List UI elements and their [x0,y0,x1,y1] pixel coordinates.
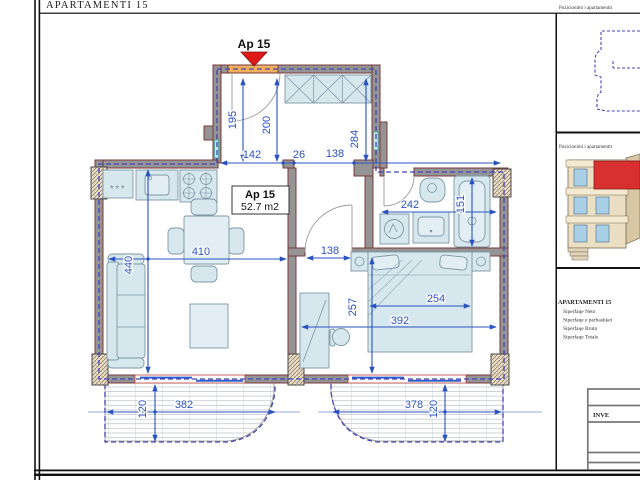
dim-entry-door: 200 [261,116,273,134]
floor-plan-canvas: *** [0,0,640,480]
building-illustration [566,154,640,260]
bedroom-furniture [300,252,490,368]
kitchen-counter: *** [103,170,217,202]
dim-bedroom-w: 392 [391,315,409,327]
dim-living-w: 410 [192,246,210,258]
room-label-box: Ap 15 52.7 m2 [232,186,289,214]
dim-balcony-r-w: 378 [405,399,423,411]
apartment-position-outline [595,31,640,111]
info-row-perbashket: Siperfaqe e perbashket [563,317,613,324]
highlighted-apartment [594,161,640,189]
unit-marker-label: Ap 15 [238,37,271,51]
drawing-sheet: *** [0,0,640,480]
dim-bath-h: 151 [455,195,467,213]
coffee-table [190,304,228,348]
fridge-symbol: *** [110,184,126,195]
dim-bath-w: 242 [401,199,419,211]
info-row-bruto: Siperfaqe Bruto [563,325,598,332]
dim-balcony-r-d: 120 [428,400,440,418]
dim-balcony-l-d: 120 [137,400,149,418]
dim-entry-left: 195 [227,111,239,129]
dim-living-h: 440 [123,256,135,274]
panel1-title: Pozicionimi i apartamentit [559,6,613,11]
title-block: INVE [587,389,640,470]
desk-chair [333,329,350,346]
door-entry [232,73,280,121]
panel2-title: Pozicionimi i apartamentit [559,145,613,150]
dim-bed-w: 254 [427,293,445,305]
info-title: APARTAMENTI 15 [558,299,611,306]
entry-marker-triangle [241,52,267,66]
title-block-text: INVE [593,412,609,419]
sheet-title: APARTAMENTI 15 [46,0,149,11]
info-row-neto: Siperfaqe Neto [563,308,596,315]
dim-bedroom-h: 257 [347,298,359,316]
room-label: Ap 15 [245,189,275,201]
dim-top-a: 142 [243,149,261,161]
side-panel: Pozicionimi i apartamentit Pozicionimi i… [556,6,640,470]
dim-top-c: 138 [326,148,344,160]
dim-balcony-l-w: 382 [175,399,193,411]
dim-corridor: 138 [321,245,339,257]
room-area: 52.7 m2 [241,201,279,213]
dim-hall: 284 [349,130,361,148]
unit-marker: Ap 15 [238,37,271,66]
hall-wardrobe [285,75,371,103]
info-row-totale: Siperfaqe Totale [563,334,599,341]
dim-top-b: 26 [293,149,305,161]
